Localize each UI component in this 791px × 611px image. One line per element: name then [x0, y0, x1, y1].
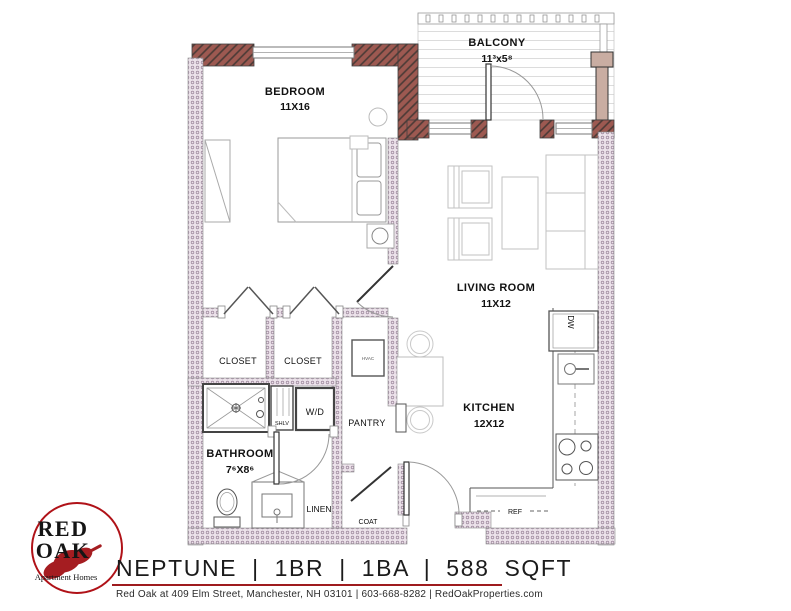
hvac-label: HVAC — [362, 356, 375, 361]
bathroom-dims: 7⁶X8⁶ — [226, 464, 255, 476]
sofa — [546, 155, 598, 269]
pantry-door — [396, 404, 406, 432]
floor-plan-svg: BEDROOM 11X16 BALCONY 11³x5⁸ LIVING ROOM… — [0, 0, 791, 611]
floorplan-page: BEDROOM 11X16 BALCONY 11³x5⁸ LIVING ROOM… — [0, 0, 791, 611]
entry-door — [404, 462, 459, 515]
living-furniture — [448, 155, 598, 269]
armchair-bottom — [448, 218, 492, 260]
living-window-left — [429, 123, 471, 134]
shower — [203, 384, 269, 432]
kitchen-dims: 12X12 — [474, 418, 505, 430]
toilet — [214, 489, 240, 527]
coat-closet-door — [351, 467, 391, 501]
stool — [369, 108, 387, 126]
bed — [278, 138, 386, 222]
living-window-right — [556, 123, 592, 134]
nightstand — [367, 224, 394, 248]
living-room-label: LIVING ROOM — [457, 282, 535, 294]
shelves-label: SHLV — [275, 421, 289, 427]
bathroom-door — [274, 432, 329, 484]
bedroom-label: BEDROOM — [265, 86, 325, 98]
balcony-deck — [418, 13, 614, 120]
washer-dryer-label: W/D — [306, 407, 325, 417]
coffee-table — [502, 177, 538, 249]
stove — [556, 434, 598, 480]
balcony-label: BALCONY — [468, 37, 525, 49]
bench — [350, 136, 368, 149]
kitchen-sink — [558, 354, 594, 384]
armchair-top — [448, 166, 492, 208]
footer-divider-rule — [112, 584, 502, 586]
bedroom-furniture — [205, 108, 394, 248]
footer-address: Red Oak at 409 Elm Street, Manchester, N… — [116, 589, 543, 600]
bathroom-label: BATHROOM — [206, 448, 273, 460]
logo-word-oak: OAK — [36, 538, 91, 563]
pantry-label: PANTRY — [348, 418, 385, 428]
coat-label: COAT — [359, 519, 379, 526]
logo-tagline: Apartment Homes — [35, 572, 98, 582]
red-oak-logo: RED OAK Apartment Homes — [32, 503, 122, 593]
living-room-dims: 11X12 — [481, 298, 511, 310]
balcony-dims: 11³x5⁸ — [481, 53, 512, 65]
bedroom-dims: 11X16 — [280, 101, 310, 113]
bathroom-fixtures — [203, 340, 384, 528]
linen-label: LINEN — [306, 504, 331, 514]
kitchen-label: KITCHEN — [463, 402, 515, 414]
plan-title: NEPTUNE | 1BR | 1BA | 588 SQFT — [116, 555, 572, 582]
fridge-label: REF — [508, 509, 522, 516]
closet-left-label: CLOSET — [219, 356, 257, 366]
wardrobe — [205, 140, 230, 222]
bedroom-window — [253, 47, 354, 58]
dishwasher-label: DW — [566, 315, 575, 329]
closet-right-label: CLOSET — [284, 356, 322, 366]
